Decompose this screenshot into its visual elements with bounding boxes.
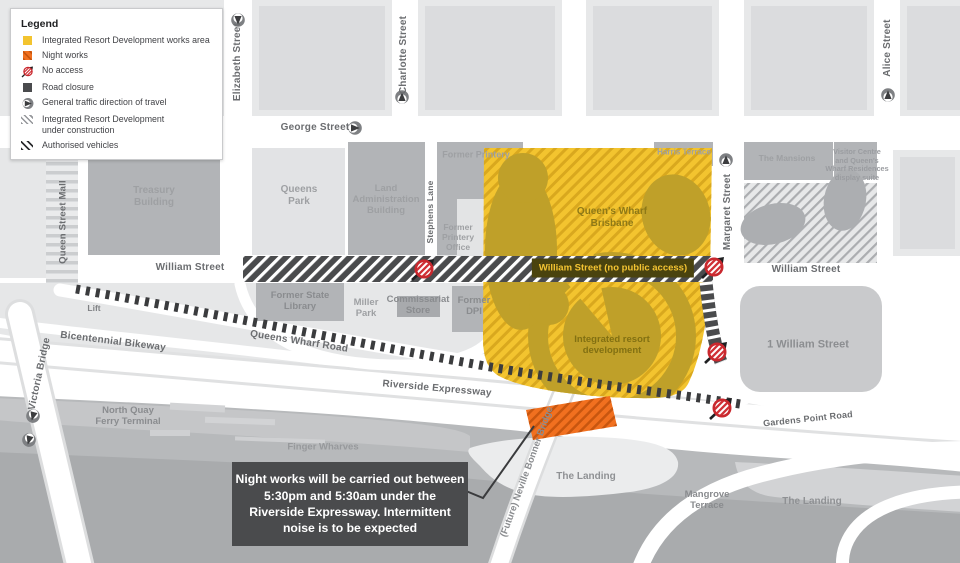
legend-item-road-closure: Road closure — [21, 82, 212, 93]
traffic-direction-icon — [231, 13, 245, 27]
former-state-library-shape — [256, 283, 344, 321]
traffic-direction-icon — [348, 121, 362, 135]
queens-park-area — [252, 148, 345, 255]
traffic-direction-icon — [881, 88, 895, 102]
road-closure-swatch-icon — [21, 82, 35, 92]
legend-panel: Legend Integrated Resort Development wor… — [10, 8, 223, 160]
night-works-callout: Night works will be carried out between … — [232, 462, 468, 546]
mansions-shape — [744, 142, 833, 180]
treasury-building-shape — [88, 146, 220, 255]
traffic-direction-icon — [21, 97, 35, 110]
traffic-direction-icon — [719, 153, 733, 167]
legend-item-no-access: No access — [21, 65, 212, 78]
night-works-swatch-icon — [21, 50, 35, 60]
legend-title: Legend — [21, 18, 212, 30]
no-access-icon — [21, 65, 35, 78]
under-construction-area — [736, 166, 877, 263]
one-william-street-shape — [740, 286, 882, 392]
legend-item-traffic-direction: General traffic direction of travel — [21, 97, 212, 110]
night-works-map: George Street Elizabeth Street Charlotte… — [0, 0, 960, 563]
works-area-swatch-icon — [21, 35, 35, 45]
legend-item-works-area: Integrated Resort Development works area — [21, 35, 212, 46]
legend-item-night-works: Night works — [21, 50, 212, 61]
william-street-no-access-badge: William Street (no public access) — [532, 259, 694, 278]
legend-item-authorised-vehicles: Authorised vehicles — [21, 140, 212, 151]
authorised-vehicles-hatch-icon — [21, 140, 35, 150]
commissariat-store-shape — [397, 296, 440, 317]
land-admin-building-shape — [348, 142, 425, 255]
under-construction-hatch-icon — [21, 114, 35, 124]
works-area — [483, 148, 719, 420]
traffic-direction-icon — [395, 90, 409, 104]
legend-item-under-construction: Integrated Resort Development under cons… — [21, 114, 212, 136]
